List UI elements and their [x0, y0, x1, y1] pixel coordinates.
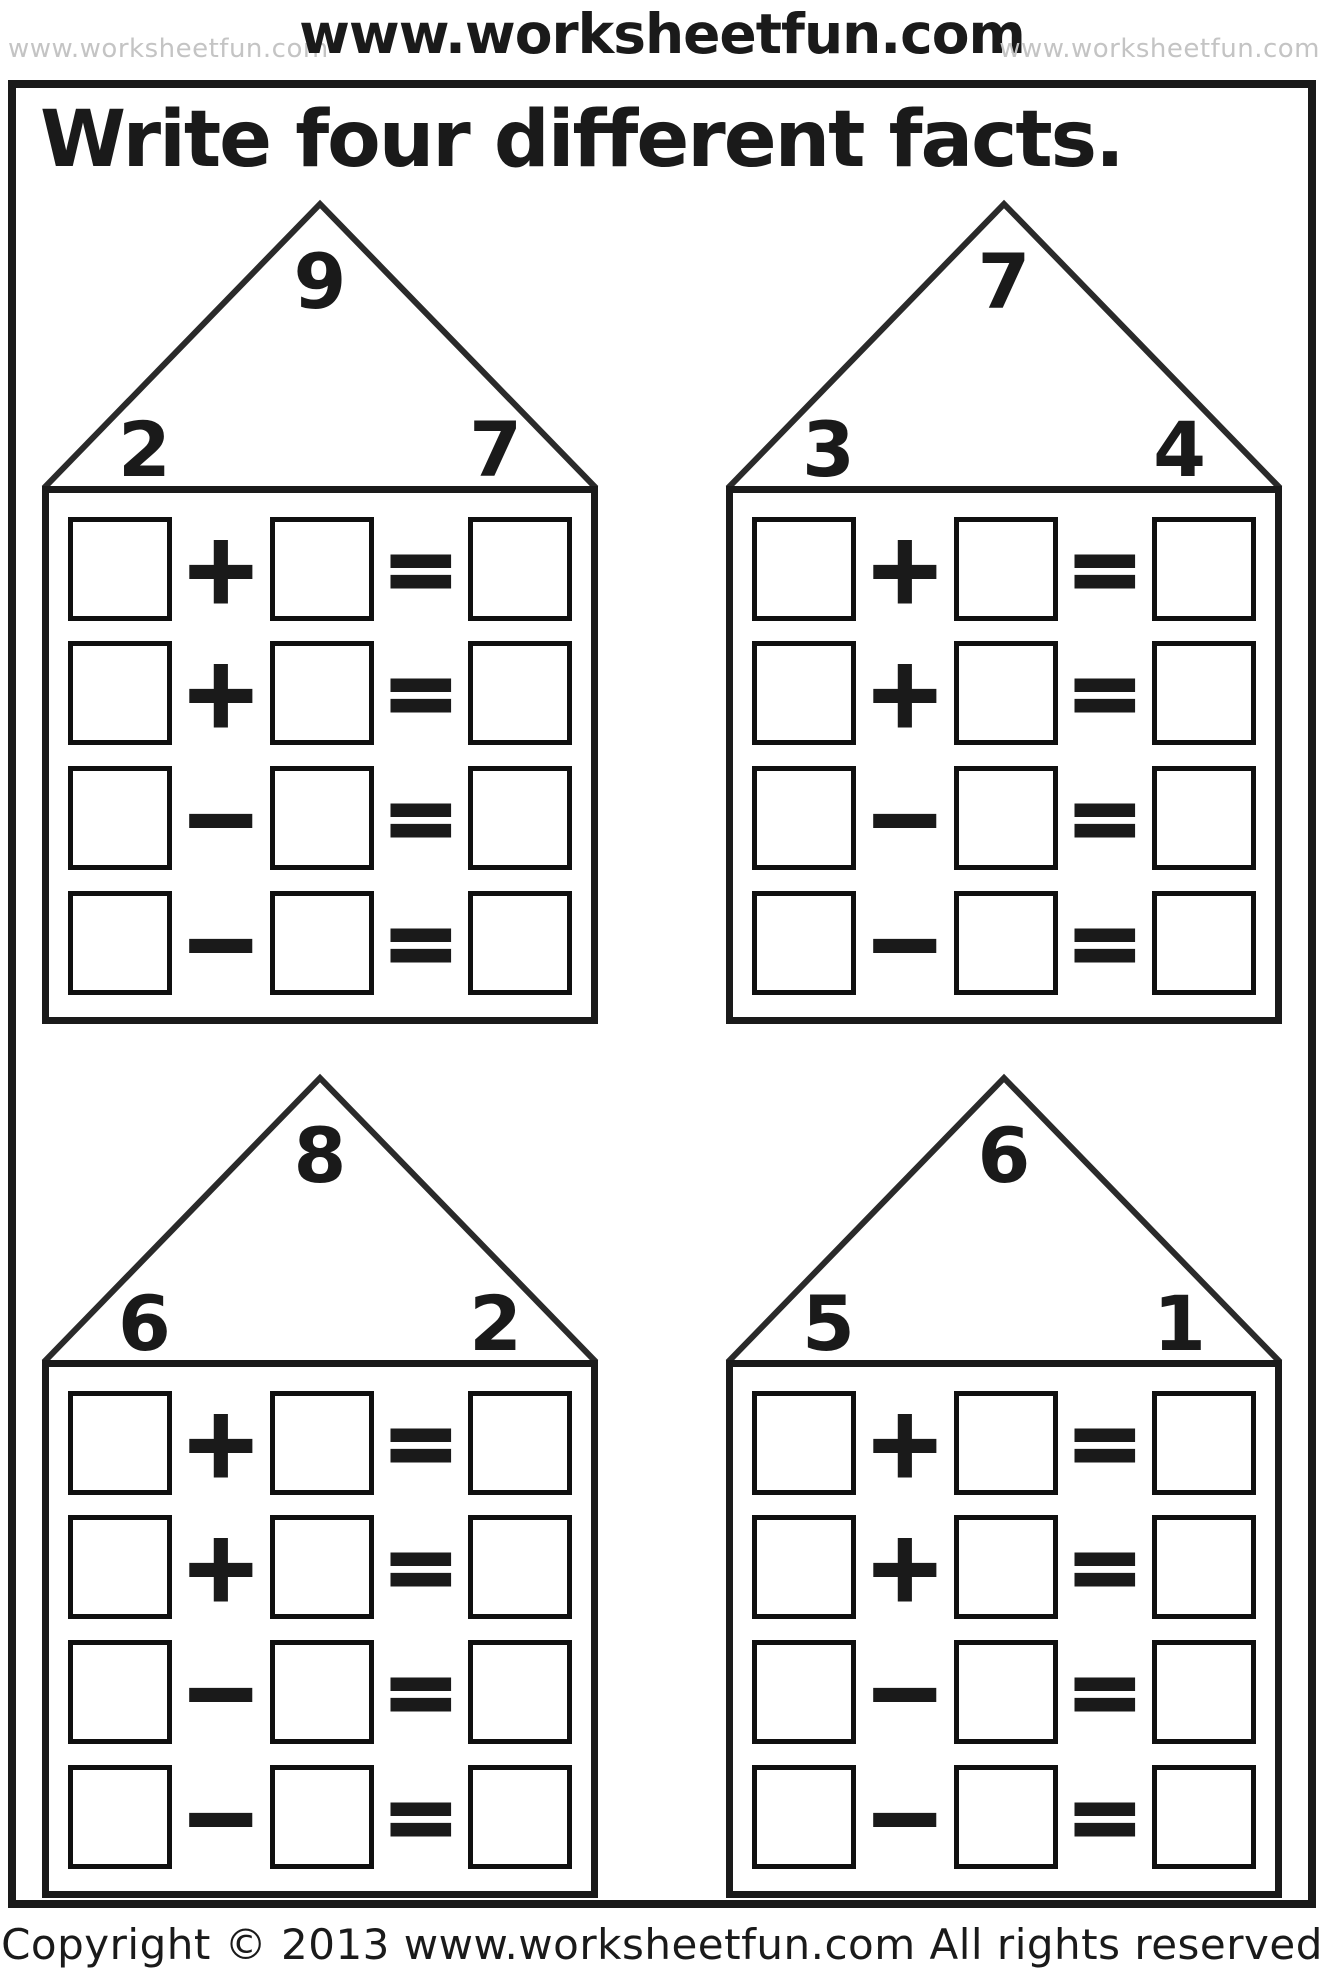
answer-box-subtrahend[interactable] — [954, 891, 1058, 995]
answer-box-result[interactable] — [468, 1391, 572, 1495]
equals-sign: = — [374, 1640, 468, 1744]
equation-row: − = — [49, 766, 591, 870]
answer-box-minuend[interactable] — [752, 1765, 856, 1869]
equation-row: + = — [733, 1515, 1275, 1619]
answer-box-addend2[interactable] — [270, 1515, 374, 1619]
answer-box-subtrahend[interactable] — [270, 1640, 374, 1744]
equation-row: − = — [733, 1765, 1275, 1869]
minus-operator: − — [172, 1640, 270, 1744]
fact-house-3: 8 6 2 + = + = — [42, 1072, 598, 1898]
plus-operator: + — [172, 641, 270, 745]
roof-sum-number: 8 — [294, 1118, 347, 1194]
roof-addend-left: 3 — [802, 412, 855, 488]
plus-operator: + — [172, 1391, 270, 1495]
answer-box-subtrahend[interactable] — [270, 1765, 374, 1869]
equation-row: − = — [49, 891, 591, 995]
minus-operator: − — [172, 1765, 270, 1869]
answer-box-result[interactable] — [1152, 891, 1256, 995]
equation-row: − = — [733, 891, 1275, 995]
answer-box-minuend[interactable] — [752, 766, 856, 870]
answer-box-result[interactable] — [468, 1515, 572, 1619]
house-1-roof: 9 2 7 — [42, 198, 598, 490]
answer-box-subtrahend[interactable] — [954, 1765, 1058, 1869]
equals-sign: = — [1058, 1765, 1152, 1869]
answer-box-addend2[interactable] — [954, 1515, 1058, 1619]
answer-box-result[interactable] — [1152, 1515, 1256, 1619]
answer-box-addend2[interactable] — [954, 517, 1058, 621]
answer-box-minuend[interactable] — [68, 766, 172, 870]
plus-operator: + — [856, 1391, 954, 1495]
answer-box-addend1[interactable] — [752, 517, 856, 621]
answer-box-subtrahend[interactable] — [954, 1640, 1058, 1744]
minus-operator: − — [172, 891, 270, 995]
house-2-body: + = + = − = — [726, 486, 1282, 1024]
answer-box-addend1[interactable] — [68, 1515, 172, 1619]
roof-addend-right: 1 — [1153, 1286, 1206, 1362]
answer-box-addend2[interactable] — [954, 1391, 1058, 1495]
equals-sign: = — [1058, 517, 1152, 621]
answer-box-addend2[interactable] — [270, 641, 374, 745]
answer-box-result[interactable] — [1152, 766, 1256, 870]
equation-row: + = — [733, 641, 1275, 745]
fact-house-4: 6 5 1 + = + = — [726, 1072, 1282, 1898]
answer-box-result[interactable] — [1152, 1765, 1256, 1869]
minus-operator: − — [856, 1765, 954, 1869]
house-2-roof: 7 3 4 — [726, 198, 1282, 490]
roof-addend-left: 5 — [802, 1286, 855, 1362]
worksheet-frame: Write four different facts. 9 2 7 + = — [8, 80, 1316, 1908]
answer-box-result[interactable] — [468, 1765, 572, 1869]
answer-box-result[interactable] — [468, 891, 572, 995]
roof-addend-right: 7 — [469, 412, 522, 488]
equation-row: − = — [49, 1640, 591, 1744]
worksheet-title: Write four different facts. — [16, 88, 1308, 186]
plus-operator: + — [172, 517, 270, 621]
house-4-roof: 6 5 1 — [726, 1072, 1282, 1364]
answer-box-minuend[interactable] — [752, 891, 856, 995]
minus-operator: − — [856, 891, 954, 995]
equation-row: − = — [733, 766, 1275, 870]
answer-box-result[interactable] — [468, 1640, 572, 1744]
equals-sign: = — [1058, 1515, 1152, 1619]
equals-sign: = — [1058, 766, 1152, 870]
equals-sign: = — [374, 766, 468, 870]
answer-box-result[interactable] — [468, 641, 572, 745]
plus-operator: + — [856, 641, 954, 745]
answer-box-subtrahend[interactable] — [270, 766, 374, 870]
answer-box-result[interactable] — [468, 766, 572, 870]
equals-sign: = — [374, 641, 468, 745]
answer-box-addend2[interactable] — [270, 1391, 374, 1495]
fact-house-1: 9 2 7 + = + = — [42, 198, 598, 1024]
house-1-body: + = + = − = — [42, 486, 598, 1024]
equation-row: + = — [733, 517, 1275, 621]
answer-box-addend1[interactable] — [68, 1391, 172, 1495]
minus-operator: − — [172, 766, 270, 870]
answer-box-result[interactable] — [1152, 641, 1256, 745]
answer-box-addend1[interactable] — [68, 641, 172, 745]
equation-row: − = — [733, 1640, 1275, 1744]
answer-box-minuend[interactable] — [68, 1765, 172, 1869]
roof-addend-left: 2 — [118, 412, 171, 488]
roof-addend-left: 6 — [118, 1286, 171, 1362]
answer-box-subtrahend[interactable] — [954, 766, 1058, 870]
plus-operator: + — [856, 517, 954, 621]
answer-box-addend1[interactable] — [752, 1391, 856, 1495]
equation-row: − = — [49, 1765, 591, 1869]
house-3-roof: 8 6 2 — [42, 1072, 598, 1364]
house-3-body: + = + = − = — [42, 1360, 598, 1898]
equals-sign: = — [1058, 1391, 1152, 1495]
answer-box-result[interactable] — [1152, 517, 1256, 621]
answer-box-result[interactable] — [1152, 1640, 1256, 1744]
roof-sum-number: 7 — [978, 244, 1031, 320]
answer-box-result[interactable] — [1152, 1391, 1256, 1495]
equals-sign: = — [374, 517, 468, 621]
equation-row: + = — [49, 1391, 591, 1495]
equation-row: + = — [49, 641, 591, 745]
equals-sign: = — [374, 1391, 468, 1495]
equals-sign: = — [374, 1765, 468, 1869]
equals-sign: = — [1058, 1640, 1152, 1744]
houses-grid: 9 2 7 + = + = — [16, 186, 1308, 1898]
answer-box-addend2[interactable] — [954, 641, 1058, 745]
answer-box-addend2[interactable] — [270, 517, 374, 621]
watermark-right: www.worksheetfun.com — [999, 34, 1320, 64]
plus-operator: + — [172, 1515, 270, 1619]
equation-row: + = — [733, 1391, 1275, 1495]
roof-addend-right: 4 — [1153, 412, 1206, 488]
answer-box-minuend[interactable] — [752, 1640, 856, 1744]
answer-box-subtrahend[interactable] — [270, 891, 374, 995]
minus-operator: − — [856, 766, 954, 870]
equals-sign: = — [374, 1515, 468, 1619]
footer-copyright: Copyright © 2013 www.worksheetfun.com Al… — [0, 1908, 1324, 1982]
equals-sign: = — [1058, 641, 1152, 745]
answer-box-minuend[interactable] — [68, 891, 172, 995]
answer-box-addend1[interactable] — [752, 1515, 856, 1619]
answer-box-addend1[interactable] — [68, 517, 172, 621]
equation-row: + = — [49, 1515, 591, 1619]
minus-operator: − — [856, 1640, 954, 1744]
equation-row: + = — [49, 517, 591, 621]
equals-sign: = — [374, 891, 468, 995]
roof-sum-number: 6 — [978, 1118, 1031, 1194]
plus-operator: + — [856, 1515, 954, 1619]
roof-sum-number: 9 — [294, 244, 347, 320]
page-header: www.worksheetfun.com www.worksheetfun.co… — [0, 0, 1324, 80]
house-4-body: + = + = − = — [726, 1360, 1282, 1898]
fact-house-2: 7 3 4 + = + = — [726, 198, 1282, 1024]
answer-box-result[interactable] — [468, 517, 572, 621]
answer-box-addend1[interactable] — [752, 641, 856, 745]
answer-box-minuend[interactable] — [68, 1640, 172, 1744]
equals-sign: = — [1058, 891, 1152, 995]
roof-addend-right: 2 — [469, 1286, 522, 1362]
